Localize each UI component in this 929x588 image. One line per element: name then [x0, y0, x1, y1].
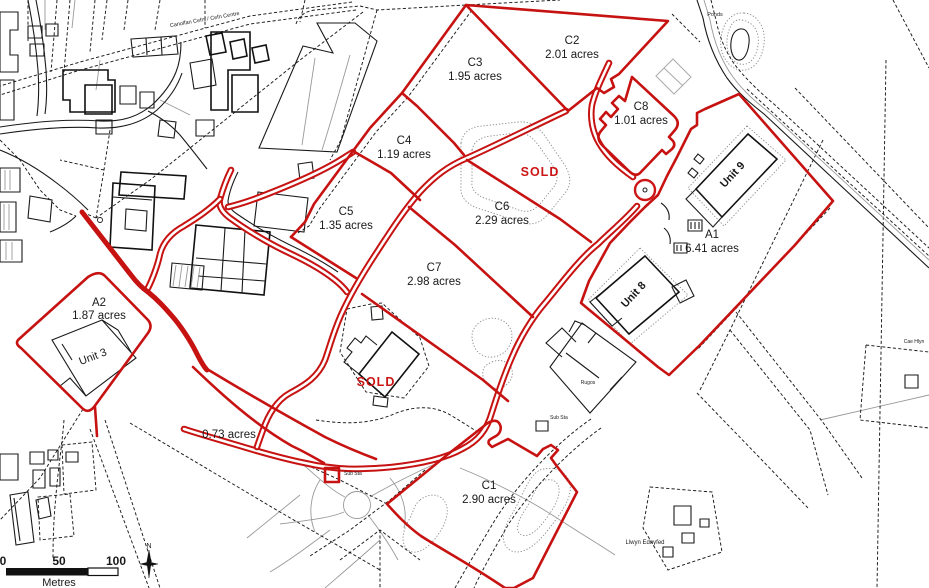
- svg-text:C3: C3: [468, 57, 483, 69]
- svg-text:N: N: [146, 543, 151, 550]
- svg-text:Cae Hlyn: Cae Hlyn: [904, 339, 925, 345]
- svg-text:Rugos: Rugos: [581, 380, 596, 386]
- svg-text:2.90 acres: 2.90 acres: [462, 494, 516, 506]
- svg-text:1.01 acres: 1.01 acres: [614, 115, 668, 127]
- svg-text:6.41 acres: 6.41 acres: [685, 243, 739, 255]
- svg-text:0.73 acres: 0.73 acres: [202, 429, 256, 441]
- svg-text:Sub Sta: Sub Sta: [344, 471, 362, 477]
- svg-text:2.98 acres: 2.98 acres: [407, 276, 461, 288]
- svg-text:0: 0: [0, 554, 7, 568]
- svg-text:C6: C6: [495, 201, 510, 213]
- svg-text:2.01 acres: 2.01 acres: [545, 49, 599, 61]
- svg-text:Ponds: Ponds: [707, 12, 723, 18]
- svg-text:1.95 acres: 1.95 acres: [448, 71, 502, 83]
- svg-text:C8: C8: [634, 101, 649, 113]
- svg-text:SOLD: SOLD: [521, 165, 560, 179]
- svg-text:2.29 acres: 2.29 acres: [475, 215, 529, 227]
- svg-text:1.87 acres: 1.87 acres: [72, 310, 126, 322]
- svg-text:A2: A2: [92, 297, 106, 309]
- svg-text:Metres: Metres: [42, 577, 76, 588]
- svg-text:1.35 acres: 1.35 acres: [319, 220, 373, 232]
- svg-text:C2: C2: [565, 35, 580, 47]
- svg-text:1.19 acres: 1.19 acres: [377, 149, 431, 161]
- svg-text:Llwyn Ednyfed: Llwyn Ednyfed: [625, 540, 664, 546]
- svg-text:C4: C4: [397, 135, 412, 147]
- svg-text:C5: C5: [339, 206, 354, 218]
- svg-text:C7: C7: [427, 262, 442, 274]
- svg-text:Sub Sta: Sub Sta: [550, 415, 568, 421]
- svg-text:C1: C1: [482, 480, 497, 492]
- svg-text:SOLD: SOLD: [357, 375, 396, 389]
- svg-text:100: 100: [106, 554, 126, 568]
- svg-text:A1: A1: [705, 229, 719, 241]
- svg-text:50: 50: [52, 554, 66, 568]
